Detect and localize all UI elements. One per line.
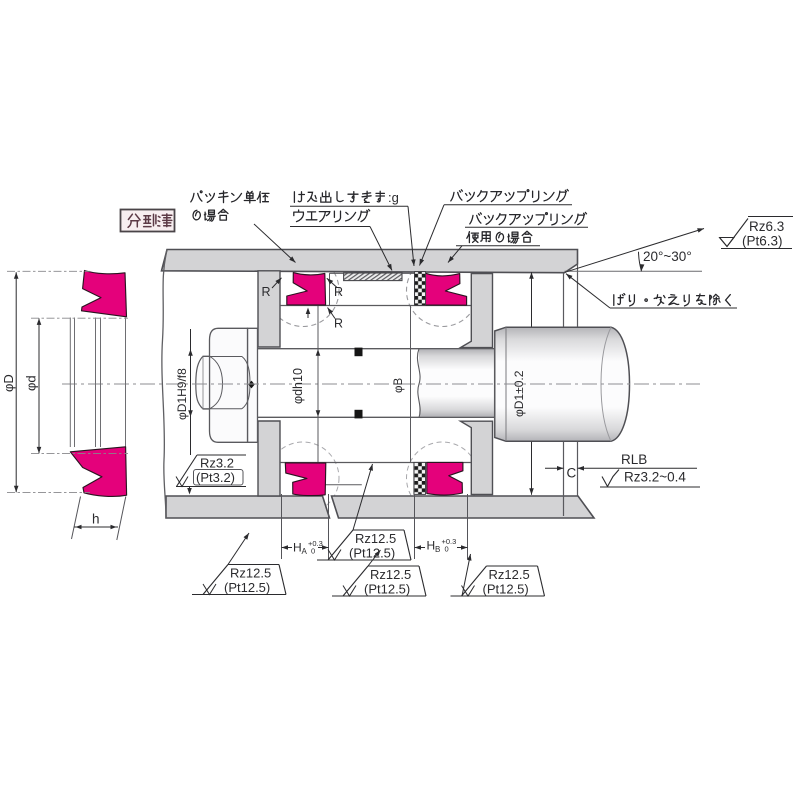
svg-text:φD1±0.2: φD1±0.2: [512, 370, 526, 417]
svg-text:RLB: RLB: [621, 452, 647, 467]
svg-text::g: :g: [388, 190, 399, 205]
svg-text:Rz12.5: Rz12.5: [355, 531, 396, 546]
svg-text:R: R: [262, 285, 271, 299]
svg-text:A: A: [302, 547, 308, 556]
svg-text:(Pt12.5): (Pt12.5): [224, 580, 270, 595]
svg-text:φdh10: φdh10: [291, 368, 305, 404]
svg-text:R: R: [334, 317, 343, 331]
svg-text:B: B: [435, 545, 440, 554]
svg-text:(Pt12.5): (Pt12.5): [364, 582, 410, 597]
svg-text:(Pt3.2): (Pt3.2): [196, 470, 235, 485]
svg-text:(Pt6.3): (Pt6.3): [742, 234, 783, 249]
svg-text:0: 0: [445, 545, 449, 554]
svg-text:(Pt12.5): (Pt12.5): [349, 546, 395, 561]
svg-text:0: 0: [311, 547, 315, 556]
svg-text:R: R: [334, 285, 343, 299]
svg-text:C: C: [567, 466, 577, 481]
svg-text:(Pt12.5): (Pt12.5): [483, 582, 529, 597]
svg-text:Rz6.3: Rz6.3: [749, 219, 784, 234]
svg-text:φB: φB: [393, 378, 405, 393]
svg-text:φD1H9/f8: φD1H9/f8: [175, 368, 189, 420]
svg-text:φd: φd: [24, 375, 39, 391]
svg-text:H: H: [293, 541, 302, 555]
svg-text:Rz12.5: Rz12.5: [230, 566, 271, 581]
svg-text:Rz3.2: Rz3.2: [200, 456, 234, 471]
svg-text:φD: φD: [1, 374, 16, 392]
svg-text:Rz12.5: Rz12.5: [370, 567, 411, 582]
svg-text:h: h: [92, 512, 100, 527]
svg-text:20°~30°: 20°~30°: [643, 249, 692, 264]
svg-text:Rz12.5: Rz12.5: [489, 567, 530, 582]
svg-text:H: H: [427, 539, 436, 553]
svg-text:Rz3.2~0.4: Rz3.2~0.4: [624, 470, 686, 485]
